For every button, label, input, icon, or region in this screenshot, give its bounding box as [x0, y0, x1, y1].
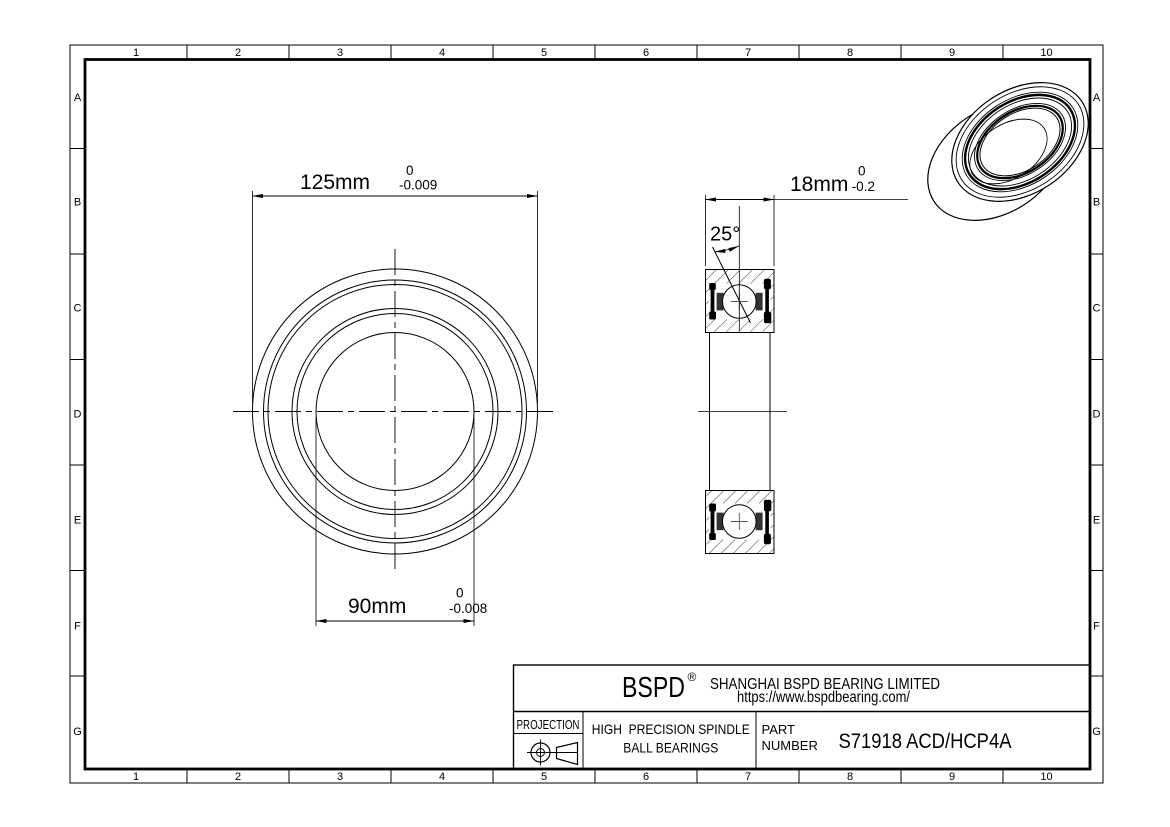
grid-col-label-bottom: 10 [1040, 771, 1052, 783]
grid-row-label-right: E [1093, 515, 1100, 527]
grid-row-label-left: F [74, 621, 81, 633]
grid-row-label-left: D [74, 409, 82, 421]
width-tol-upper: 0 [858, 164, 866, 179]
registered-trademark-icon: ® [688, 670, 697, 684]
dim-width: 18mm 0 -0.2 [706, 164, 909, 267]
grid-col-label-bottom: 2 [235, 771, 241, 783]
grid-row-label-right: F [1093, 621, 1100, 633]
grid-row-label-left: B [74, 197, 81, 209]
bore-value: 90mm [348, 595, 406, 618]
bore-tol-lower: -0.008 [449, 601, 487, 616]
grid-col-label-bottom: 9 [949, 771, 955, 783]
od-tol-lower: -0.009 [399, 178, 437, 193]
grid-col-label-bottom: 1 [133, 771, 139, 783]
od-tol-upper: 0 [406, 163, 414, 178]
width-value: 18mm [790, 173, 848, 196]
grid-row-ticks [70, 149, 1103, 677]
grid-col-label-top: 2 [235, 47, 241, 59]
grid-row-label-right: D [1093, 409, 1101, 421]
grid-row-label-left: E [74, 515, 81, 527]
grid-row-label-right: G [1092, 726, 1101, 738]
grid-column-ticks [187, 45, 1003, 783]
grid-col-label-top: 8 [847, 47, 853, 59]
angle-arc [715, 246, 739, 252]
bearing-3d-view [906, 58, 1111, 245]
top-ring-detail [709, 279, 771, 324]
grid-col-label-top: 4 [439, 47, 445, 59]
grid-col-label-bottom: 3 [337, 771, 343, 783]
grid-col-label-bottom: 6 [643, 771, 649, 783]
front-view [233, 249, 558, 574]
projection-label: PROJECTION [517, 717, 580, 732]
product-type-line2: BALL BEARINGS [623, 740, 718, 756]
grid-row-label-left: C [74, 303, 82, 315]
grid-col-label-top: 6 [643, 47, 649, 59]
title-block: BSPD ® SHANGHAI BSPD BEARING LIMITED htt… [514, 665, 1091, 769]
grid-col-label-top: 7 [745, 47, 751, 59]
contact-angle-value: 25° [710, 224, 740, 246]
grid-col-label-bottom: 8 [847, 771, 853, 783]
bore-tol-upper: 0 [456, 586, 464, 601]
od-value: 125mm [300, 171, 370, 194]
grid-col-label-top: 5 [541, 47, 547, 59]
part-label-line1: PART [762, 722, 796, 737]
bottom-ring-detail [709, 500, 771, 545]
grid-row-label-right: C [1093, 303, 1101, 315]
grid-row-label-right: B [1093, 197, 1100, 209]
grid-col-label-top: 10 [1040, 47, 1052, 59]
dim-bore-diameter: 90mm 0 -0.008 [316, 417, 487, 626]
grid-col-label-bottom: 7 [745, 771, 751, 783]
grid-col-label-bottom: 4 [439, 771, 445, 783]
grid-col-label-bottom: 5 [541, 771, 547, 783]
company-website: https://www.bspdbearing.com/ [737, 689, 911, 706]
section-view [698, 270, 787, 554]
part-number: S71918 ACD/HCP4A [839, 730, 1012, 753]
part-label-line2: NUMBER [762, 738, 818, 753]
grid-col-label-top: 3 [337, 47, 343, 59]
company-logo: BSPD [622, 672, 685, 704]
first-angle-projection-icon [527, 740, 578, 766]
drawing-sheet: 1122334455667788991010AABBCCDDEEFFGG 125… [0, 0, 1170, 827]
grid-row-label-left: A [74, 92, 82, 104]
grid-row-label-left: G [73, 726, 82, 738]
grid-col-label-top: 1 [133, 47, 139, 59]
width-tol-lower: -0.2 [852, 179, 875, 194]
grid-col-label-top: 9 [949, 47, 955, 59]
grid-row-label-right: A [1093, 92, 1101, 104]
product-type-line1: HIGH PRECISION SPINDLE [592, 721, 750, 737]
